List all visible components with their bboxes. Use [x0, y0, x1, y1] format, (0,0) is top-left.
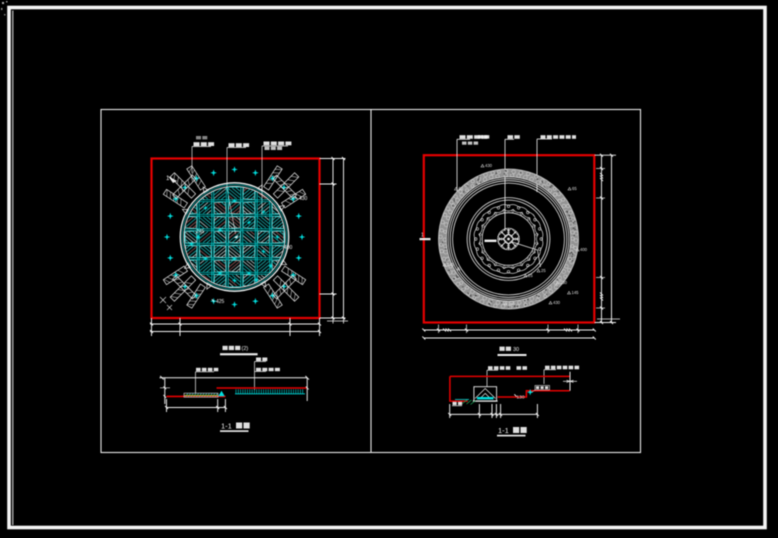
svg-text:1-1: 1-1: [498, 426, 509, 435]
svg-text:130: 130: [560, 280, 568, 285]
svg-text:400: 400: [580, 247, 588, 252]
svg-text:130: 130: [517, 395, 525, 401]
svg-text:1: 1: [421, 233, 424, 239]
svg-text:400: 400: [284, 245, 293, 251]
svg-text:245: 245: [196, 229, 205, 235]
svg-text:1-1: 1-1: [221, 422, 232, 431]
svg-text:430: 430: [299, 196, 308, 202]
svg-text:65: 65: [459, 186, 464, 191]
svg-text:425: 425: [216, 299, 225, 305]
svg-text:25: 25: [528, 273, 533, 278]
svg-text:65: 65: [572, 186, 577, 191]
svg-text:145: 145: [572, 290, 580, 295]
svg-text:25: 25: [541, 268, 546, 273]
svg-text:(2): (2): [242, 346, 249, 352]
svg-text:430: 430: [553, 300, 561, 305]
svg-text:430: 430: [485, 163, 493, 168]
svg-text:145: 145: [447, 262, 455, 267]
svg-text:30: 30: [513, 347, 519, 353]
svg-text:145: 145: [508, 301, 516, 306]
